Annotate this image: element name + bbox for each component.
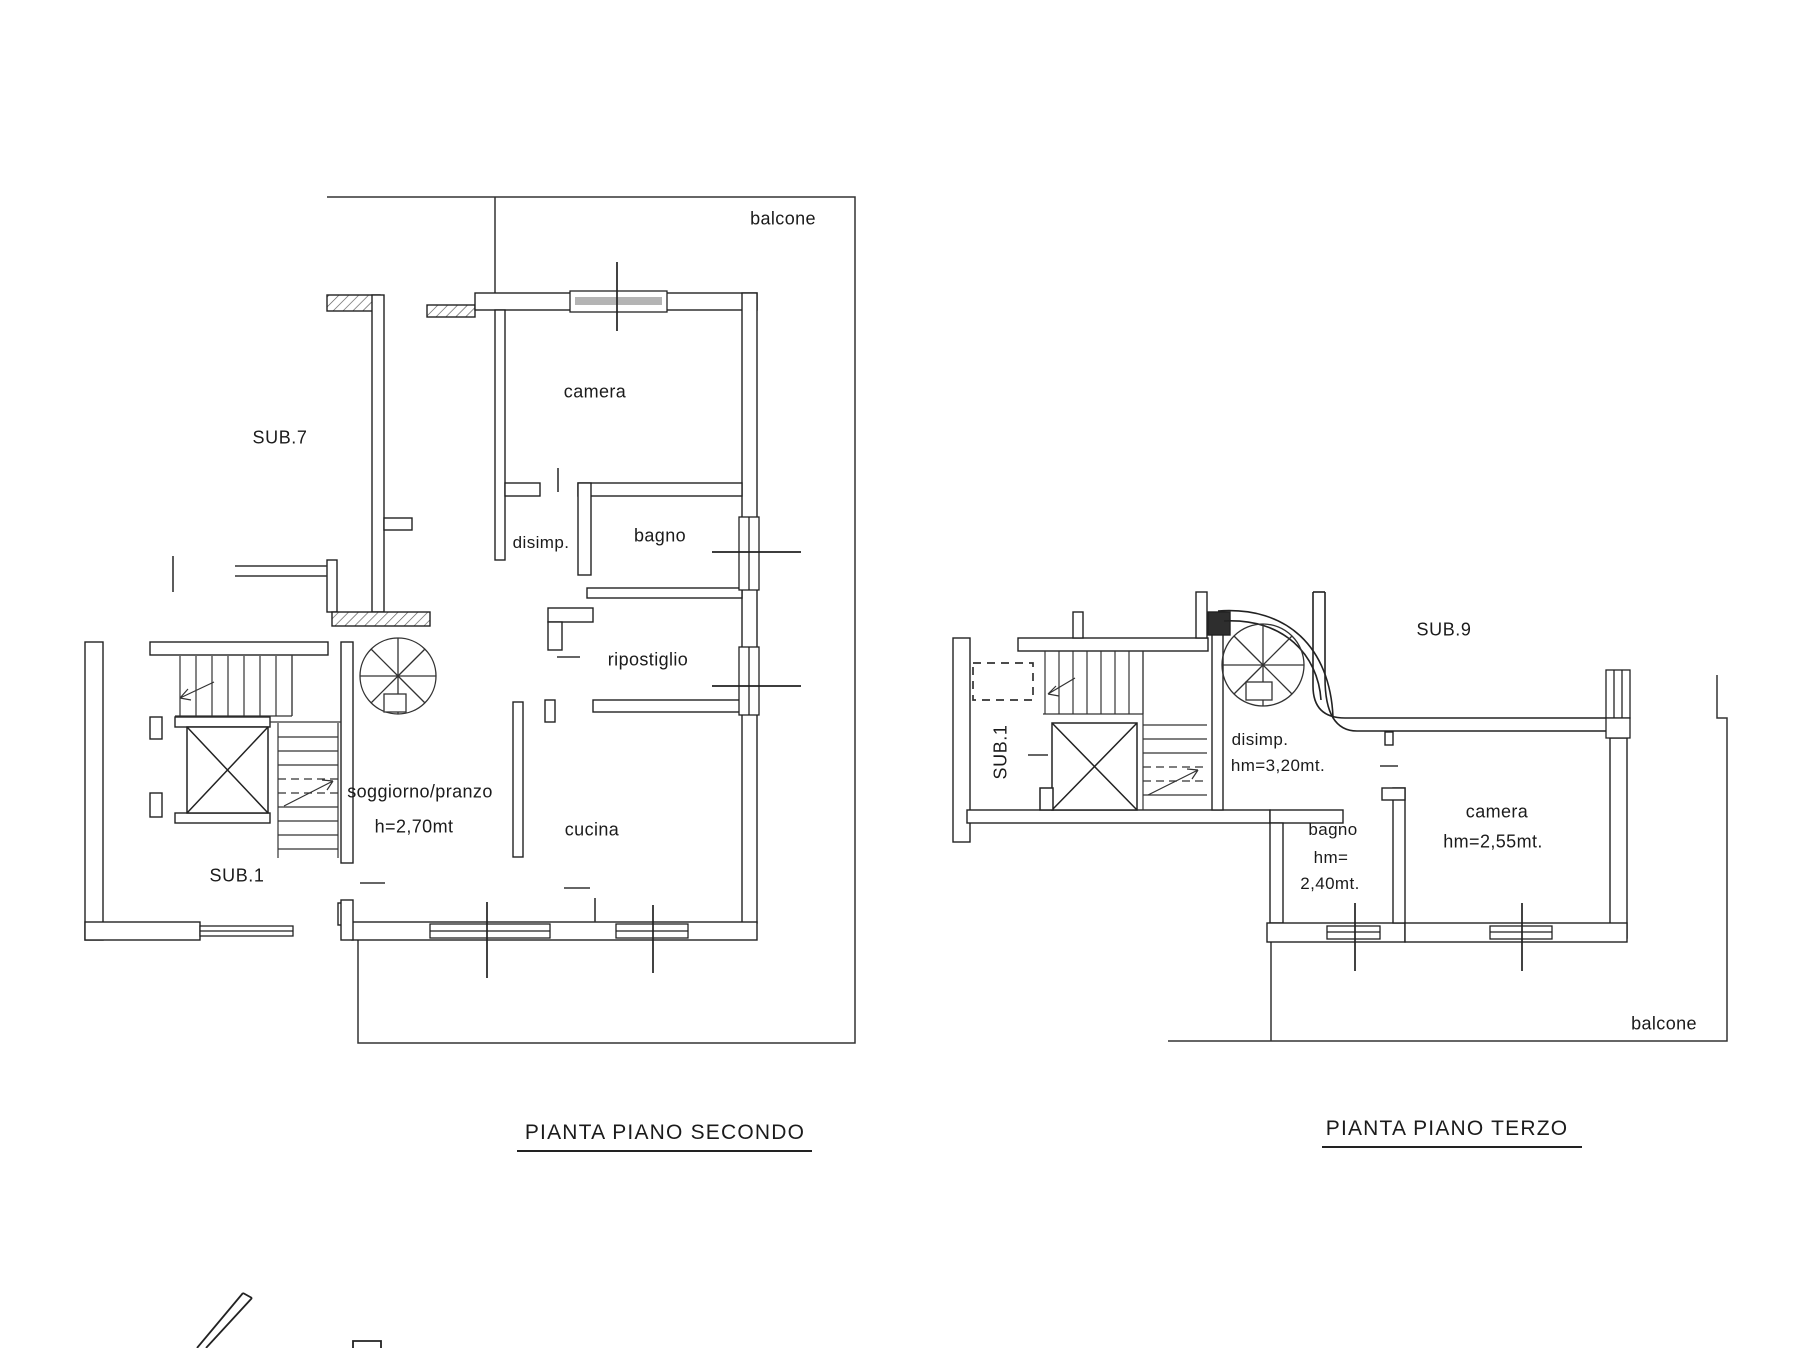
plan2-camera-label: camera xyxy=(564,382,626,403)
plan2-sub1-label: SUB.1 xyxy=(209,866,264,887)
plan2-bagno-label: bagno xyxy=(634,526,686,547)
plan3-camera-label: camera xyxy=(1466,802,1528,823)
plan3-spiral-staircase xyxy=(1222,624,1304,706)
plan2-cucina-label: cucina xyxy=(565,820,619,841)
plan3-bagno-label: bagno xyxy=(1308,820,1357,840)
plan2-spiral-staircase xyxy=(360,638,436,714)
plan3-elevator xyxy=(1040,723,1137,810)
plan3-dashed-void xyxy=(973,663,1033,700)
plan-linework xyxy=(0,0,1800,1348)
plan3-camera-height-label: hm=2,55mt. xyxy=(1443,832,1543,853)
plan3-corridor-walls xyxy=(1218,592,1606,731)
plan3-disimp-height-label: hm=3,20mt. xyxy=(1231,756,1325,776)
floorplan-sheet: balcone camera SUB.7 disimp. bagno ripos… xyxy=(0,0,1800,1348)
plan2-soggiorno-label: soggiorno/pranzo xyxy=(347,782,493,803)
caption-underlines xyxy=(517,1147,1582,1151)
plan3-sub1-label: SUB.1 xyxy=(991,724,1012,779)
plan2-soggiorno-height-label: h=2,70mt xyxy=(375,817,454,838)
plan3-caption: PIANTA PIANO TERZO xyxy=(1326,1117,1569,1141)
plan3-bagno-height2-label: 2,40mt. xyxy=(1300,874,1360,894)
plan3-balcone-label: balcone xyxy=(1631,1014,1697,1035)
plan2-ripostiglio-label: ripostiglio xyxy=(608,650,688,671)
plan3-sub9-label: SUB.9 xyxy=(1416,620,1471,641)
plan2-walls xyxy=(85,293,757,940)
plan2-caption: PIANTA PIANO SECONDO xyxy=(525,1121,805,1145)
fragment-bottom-left xyxy=(197,1293,381,1348)
plan2-balcone-label: balcone xyxy=(750,209,816,230)
plan2-disimp-label: disimp. xyxy=(513,533,570,553)
plan3-disimp-label: disimp. xyxy=(1232,730,1289,750)
plan2-window-symbols xyxy=(200,291,759,938)
plan2-elevator xyxy=(187,727,268,813)
plan3-bagno-height1-label: hm= xyxy=(1314,848,1349,868)
plan2-sub7-label: SUB.7 xyxy=(252,428,307,449)
